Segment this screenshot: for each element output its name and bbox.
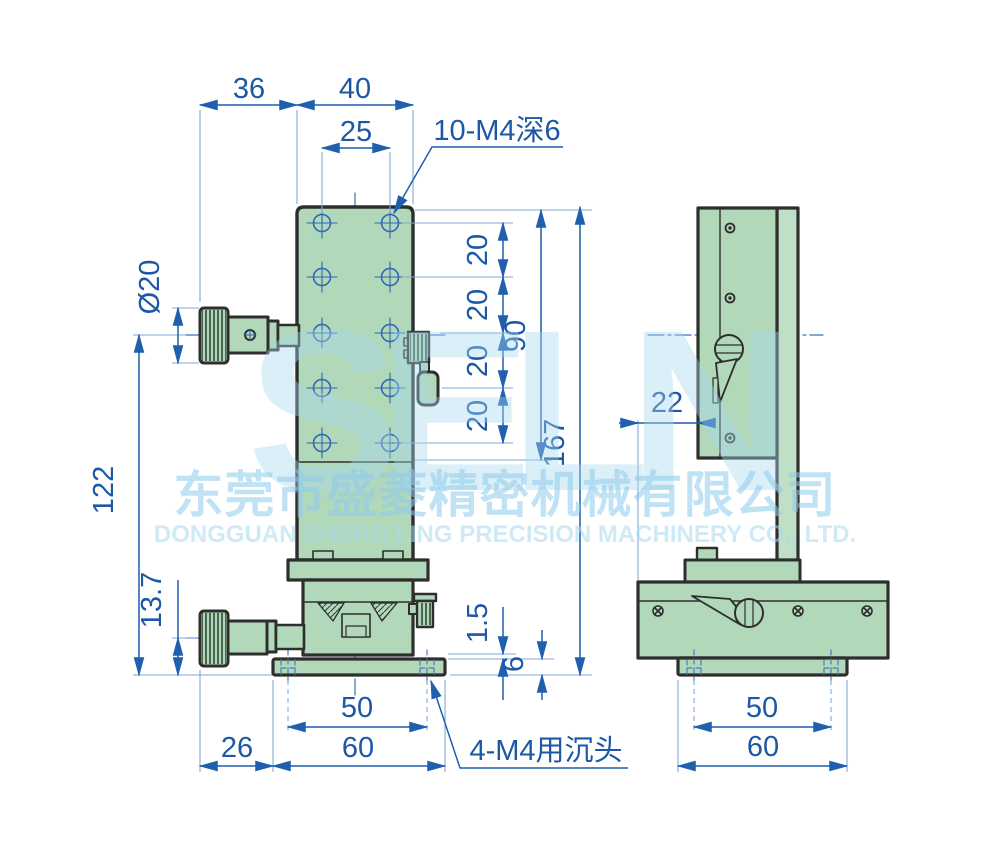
leadscrew-block-step (346, 626, 366, 637)
side-tab (697, 548, 717, 560)
dim-122: 122 (88, 466, 120, 514)
watermark-company-en: DONGGUAN SHENG LING PRECISION MACHINERY … (154, 521, 856, 548)
saddle-plate (288, 560, 428, 580)
dim-36: 36 (233, 73, 265, 105)
side-base-flange (678, 658, 847, 675)
dim-40: 40 (339, 73, 371, 105)
dim-60-side: 60 (747, 731, 779, 763)
technical-drawing: 36 40 25 10-M4深6 Ø20 122 13.7 20 20 20 2… (0, 0, 1001, 853)
leader-thread-note (394, 147, 563, 213)
dim-13-7: 13.7 (136, 572, 168, 628)
cbore-note: 4-M4用沉头 (469, 734, 622, 767)
dim-26: 26 (221, 732, 253, 764)
drawing-canvas: 36 40 25 10-M4深6 Ø20 122 13.7 20 20 20 2… (0, 0, 1001, 853)
dim-50-side: 50 (746, 692, 778, 724)
dim-25: 25 (340, 116, 372, 148)
dim-50-front: 50 (341, 692, 373, 724)
dim-6: 6 (498, 656, 530, 672)
base-flange (273, 659, 445, 675)
watermark-company-cn: 东莞市盛菱精密机械有限公司 (174, 467, 837, 523)
dim-20-1: 20 (462, 234, 494, 266)
side-saddle-block (685, 560, 800, 582)
side-base-body (638, 582, 888, 658)
dim-knob-dia: Ø20 (134, 260, 166, 315)
dim-1-5: 1.5 (462, 603, 494, 643)
watermark: SELN 东莞市盛菱精密机械有限公司 DONGGUAN SHENG LING P… (154, 282, 856, 548)
thread-note: 10-M4深6 (433, 115, 560, 147)
dim-60-front: 60 (342, 732, 374, 764)
